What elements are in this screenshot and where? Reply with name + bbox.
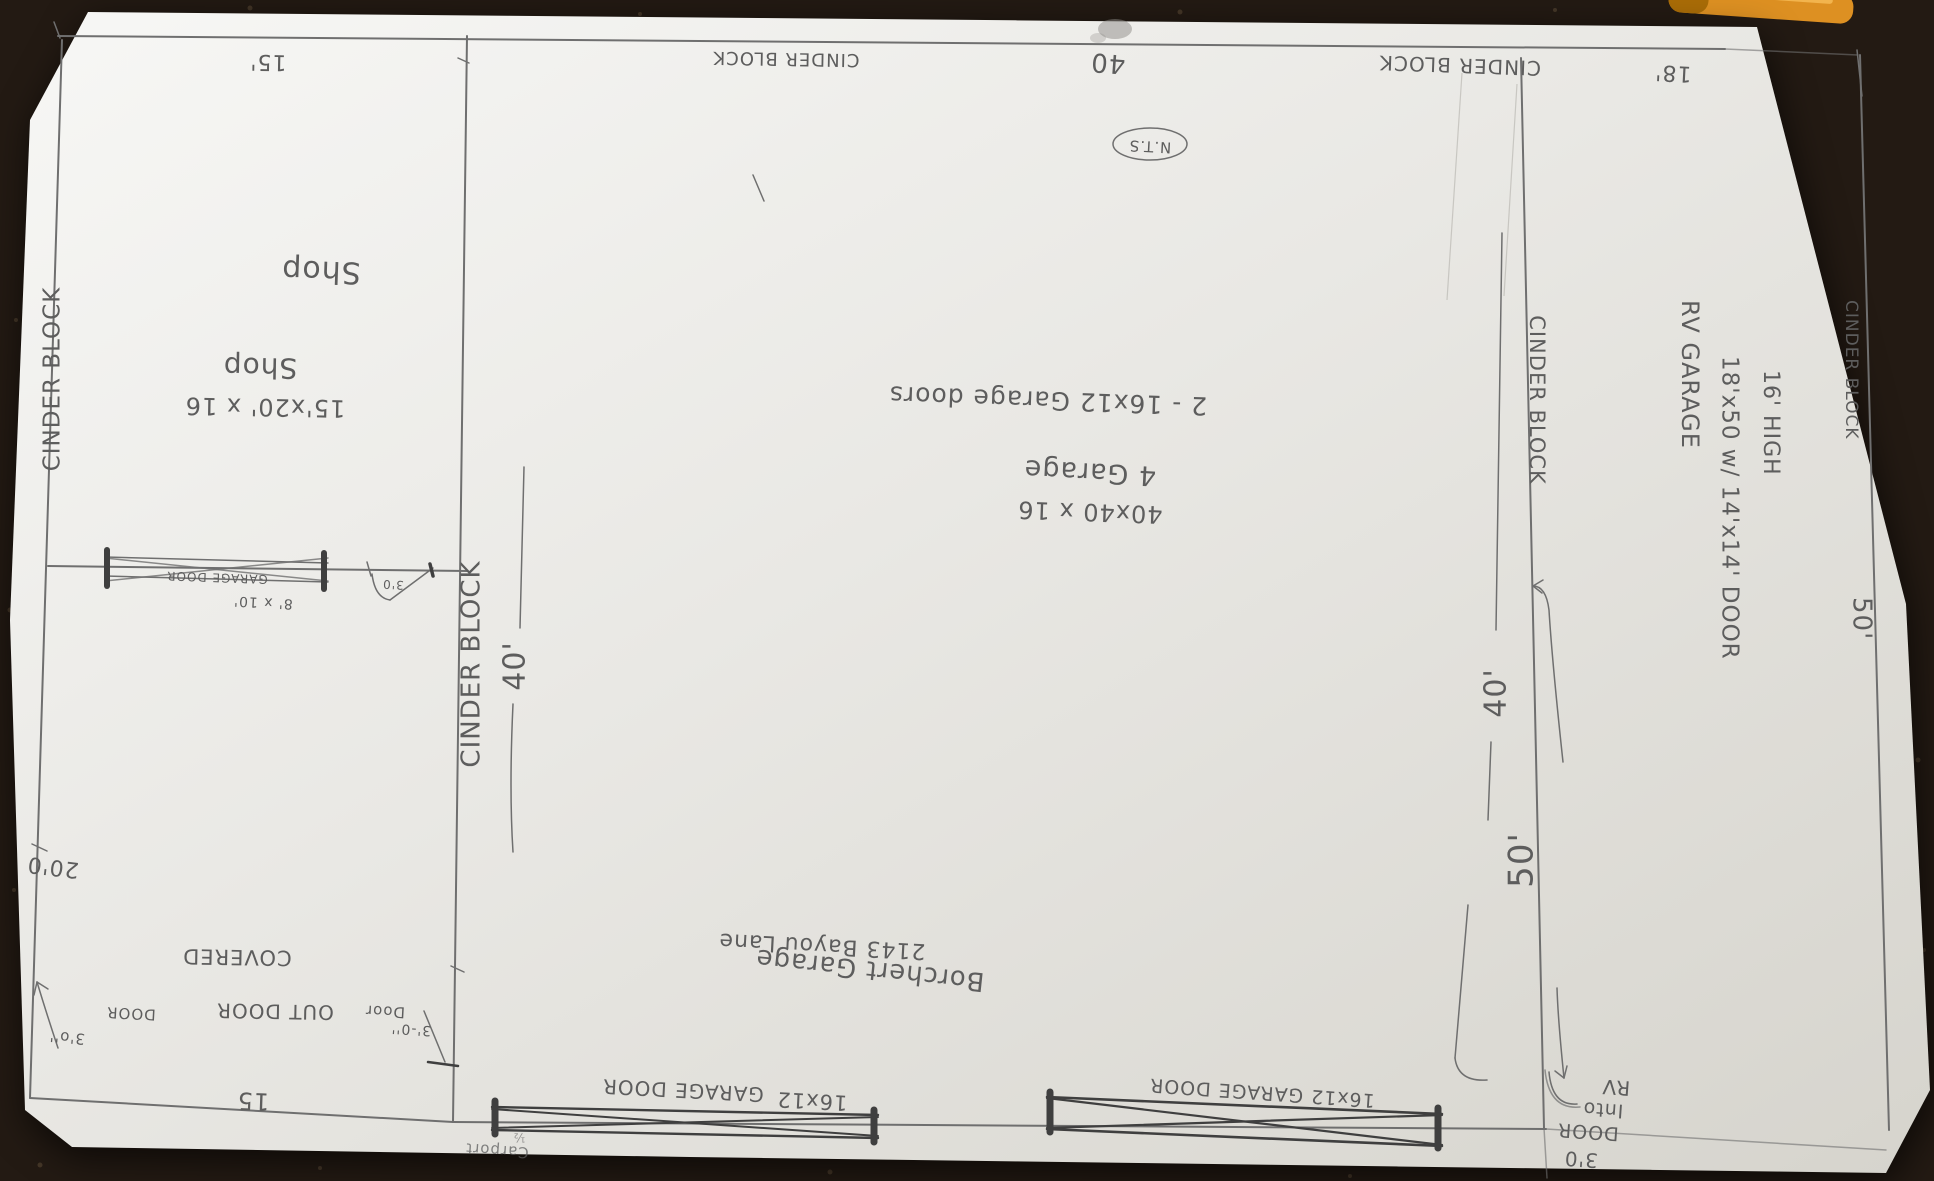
dim-50ft-right: 50' [1502, 832, 1542, 888]
label-rv-garage: RV GARAGE [1676, 300, 1704, 449]
label-cinder-block-left-wall: CINDER BLOCK [40, 287, 66, 472]
label-covered: COVERED [182, 944, 292, 970]
label-outdoor: OUT DOOR [216, 998, 334, 1024]
photo-of-floorplan-sketch: 15' CINDER BLOCK 40 CINDER BLOCK 18' N.T… [0, 0, 1934, 1181]
label-cinder-block-mid-wall: CINDER BLOCK [457, 560, 487, 767]
label-rv-door-rv: RV [1601, 1075, 1631, 1101]
sketch-canvas: 15' CINDER BLOCK 40 CINDER BLOCK 18' N.T… [0, 0, 1934, 1181]
dim-40ft-right: 40' [1479, 668, 1514, 717]
dim-18ft-top: 18' [1654, 59, 1692, 86]
dim-shop-door-size: 8' x 10' [233, 592, 293, 611]
label-inner-door: Door [364, 1001, 405, 1021]
graphite-smudge-small [1090, 33, 1106, 43]
label-cinder-block-top-left: CINDER BLOCK [712, 47, 860, 71]
label-cinder-block-right-wall: CINDER BLOCK [1525, 315, 1549, 485]
label-cinder-block-edge: CINDER BLOCK [1841, 300, 1861, 440]
dim-rv-door-size: 3'0 [1563, 1146, 1599, 1172]
dim-50ft-edge: 50' [1847, 597, 1877, 640]
dim-15-carport: 15 [236, 1086, 270, 1115]
label-shop-a: Shop [281, 252, 362, 290]
dim-door1-size: 16x12 [776, 1087, 848, 1115]
dim-40ft-middle: 40' [498, 641, 533, 690]
dim-inner-door-size: 3'-0'' [390, 1020, 431, 1039]
dim-edge-door-size: 3'o'' [48, 1027, 86, 1048]
label-edge-door: DOOR [106, 1003, 156, 1024]
dim-15ft-top: 15' [249, 49, 286, 75]
dim-shop-size: 15'x20' x 16 [185, 392, 346, 423]
label-rv-height: 16' HIGH [1758, 370, 1783, 476]
label-shop-b: Shop [222, 350, 297, 384]
dim-shop-side-door: 3'0 [382, 577, 404, 592]
label-rv-door: DOOR [1556, 1118, 1619, 1144]
mark-half: ½ [513, 1131, 526, 1145]
paper-sheet [10, 12, 1930, 1173]
label-rv-door-into: Into [1582, 1097, 1624, 1122]
label-rv-size: 18'x50 w/ 14'x14' DOOR [1717, 356, 1743, 660]
nts-note: N.T.S [1128, 136, 1172, 156]
dim-40ft-top: 40 [1089, 46, 1126, 78]
dim-garage-size: 40x40 x 16 [1017, 495, 1163, 528]
